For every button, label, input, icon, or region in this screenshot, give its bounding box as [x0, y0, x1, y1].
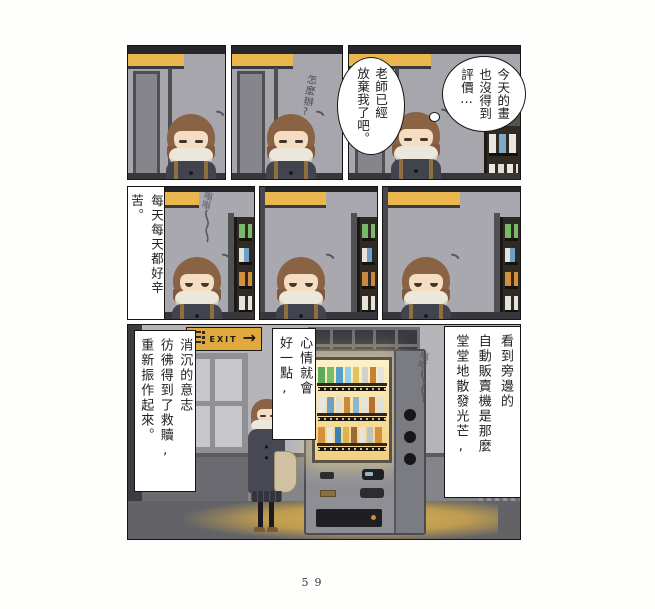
girl-character — [397, 257, 455, 320]
girl-eye — [279, 140, 287, 143]
bottle-shelf — [505, 244, 518, 265]
girl-eye — [260, 415, 266, 417]
bottle-shelf — [239, 244, 252, 265]
vending-machine-slice — [484, 126, 520, 174]
door — [133, 71, 160, 179]
caption-text: 消沉的意志 彷彿得到了救贖, 重新振作起來。 — [136, 338, 195, 484]
girl-character — [262, 114, 320, 180]
girl-coat — [166, 161, 216, 180]
sfx-hum: 嗡嗡 — [200, 191, 213, 243]
girl-eye — [185, 283, 193, 287]
girl-leg — [258, 502, 263, 528]
thought-bubble-dot — [429, 112, 440, 122]
caption-box: 看到旁邊的 自動販賣機是那麼 堂堂地散發光芒, — [444, 326, 521, 498]
tote-bag — [274, 451, 297, 493]
thought-bubble: 今天的畫 也沒得到 評價⋯ — [442, 56, 526, 132]
panel-row2-2 — [259, 186, 378, 320]
corridor-sign — [383, 192, 460, 208]
comic-page: 怎麼辦? — [0, 0, 655, 609]
shelf-bar — [317, 383, 387, 386]
window-pane — [376, 330, 395, 344]
girl-eye — [201, 283, 209, 287]
bottle-shelf — [239, 292, 252, 313]
girl-character — [162, 114, 220, 180]
girl-coat — [276, 304, 326, 320]
girl-coat — [172, 304, 222, 320]
girl-eye — [305, 283, 313, 287]
slot-light — [371, 515, 376, 520]
bottle-shelf — [239, 268, 252, 289]
caption-box: 每天每天都好辛苦。 — [127, 186, 165, 320]
window-pane — [333, 330, 352, 344]
girl-eye — [289, 283, 297, 287]
exit-sign: EXIT → — [186, 327, 262, 351]
vending-machine-controls — [312, 467, 392, 505]
girl-skirt — [251, 491, 282, 502]
bottle-shelf — [505, 292, 518, 313]
caption-text: 心情就會 好一點, — [274, 336, 314, 432]
caption-box: 消沉的意志 彷彿得到了救贖, 重新振作起來。 — [134, 330, 196, 492]
vending-machine-slice — [500, 217, 520, 313]
bottle-shelf — [318, 423, 386, 443]
girl-eye — [420, 138, 428, 141]
sfx-hum: 嗡嗡 — [416, 351, 429, 403]
girl-character — [168, 257, 226, 320]
window-pane — [355, 330, 374, 344]
steam-line-icon — [418, 369, 428, 403]
panel-row1-1 — [127, 45, 226, 180]
shelf-bar — [317, 443, 387, 446]
panel-row1-2: 怎麼辦? — [231, 45, 343, 180]
girl-character — [272, 257, 330, 320]
girl-eye — [404, 138, 412, 141]
button-pad — [360, 488, 384, 498]
vending-machine-slice — [357, 217, 377, 313]
price-buttons — [318, 387, 386, 391]
side-button — [404, 409, 416, 421]
caption-text: 每天每天都好辛苦。 — [126, 194, 166, 312]
bottle-shelf — [362, 268, 375, 289]
girl-eye — [195, 140, 203, 143]
bubble-text: 老師已經 放棄我了吧。 — [353, 67, 389, 145]
caption-text: 看到旁邊的 自動販賣機是那麼 堂堂地散發光芒, — [449, 334, 516, 490]
girl-coat — [266, 161, 316, 180]
bottle-shelf — [362, 220, 375, 241]
bottle-shelf — [489, 129, 518, 156]
bottle-shelf — [362, 244, 375, 265]
bubble-text: 今天的畫 也沒得到 評價⋯ — [457, 68, 511, 120]
window-pane — [398, 330, 417, 344]
girl-eye — [179, 140, 187, 143]
bottle-shelf — [505, 220, 518, 241]
girl-eye — [295, 140, 303, 143]
price-display — [362, 469, 384, 480]
caption-box: 心情就會 好一點, — [272, 328, 316, 440]
girl-leg — [269, 502, 274, 528]
exit-sign-label: EXIT — [210, 335, 238, 344]
side-button — [404, 453, 416, 465]
steam-line-icon — [202, 209, 212, 243]
wall-frame — [383, 187, 388, 319]
page-number: 59 — [0, 576, 629, 589]
corridor-sign — [260, 192, 326, 208]
vending-machine-window — [312, 357, 392, 463]
panel-row2-3 — [382, 186, 521, 320]
bottle-shelf — [318, 363, 386, 383]
girl-shoe — [267, 527, 278, 532]
sfx-hum-text: 嗡嗡 — [414, 350, 431, 371]
girl-coat — [401, 304, 451, 320]
girl-shoe — [254, 527, 265, 532]
bottle-shelf — [239, 220, 252, 241]
ceiling-band — [349, 46, 520, 54]
thought-bubble: 老師已經 放棄我了吧。 — [337, 57, 405, 155]
side-button — [404, 431, 416, 443]
coin-slot — [320, 472, 334, 479]
window-pane — [215, 359, 242, 401]
girl-eye — [414, 283, 422, 287]
ceiling-band — [128, 46, 225, 54]
shelf-bar — [317, 413, 387, 416]
girl-coat — [391, 159, 441, 180]
coin-return-tray — [320, 490, 336, 497]
bottle-shelf — [318, 393, 386, 413]
bottle-shelf — [505, 268, 518, 289]
vending-machine — [304, 349, 426, 535]
ceiling-band — [232, 46, 342, 54]
corridor-sign — [128, 54, 184, 69]
door — [237, 71, 265, 179]
exit-arrow-icon: → — [243, 330, 256, 346]
dispensing-slot — [316, 509, 382, 527]
bottle-shelf — [362, 292, 375, 313]
corridor-sign — [232, 54, 293, 69]
price-buttons — [318, 447, 386, 451]
vending-machine-slice — [234, 217, 254, 313]
price-buttons — [318, 417, 386, 421]
girl-eye — [430, 283, 438, 287]
sfx-hum-text: 嗡嗡 — [198, 190, 215, 211]
wall-frame — [260, 187, 265, 319]
